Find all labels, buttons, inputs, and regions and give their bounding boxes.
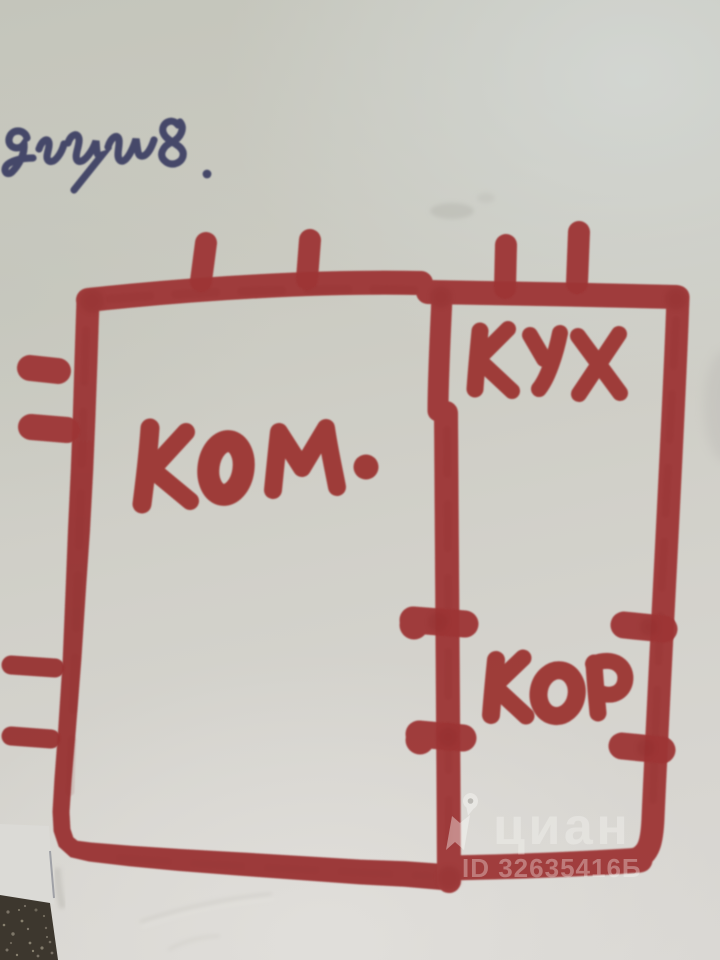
svg-text:ID 32635416Б: ID 32635416Б — [462, 853, 642, 883]
svg-text:циан: циан — [493, 798, 631, 856]
